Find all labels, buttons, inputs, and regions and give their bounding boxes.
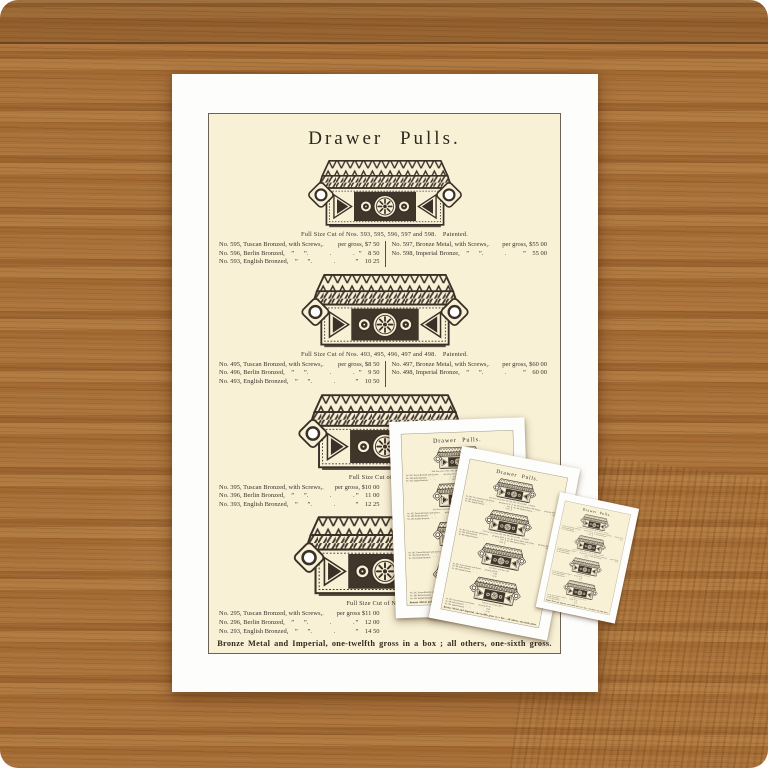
item-label: No. 593, English Bronzed, ” ” [406,479,435,483]
item-price: per gross, $8 50 [338,361,380,370]
catalog-page: Drawer Pulls. Full Size Cut of Nos. 593,… [544,501,631,615]
item-price: per gross, $10 00 [335,484,380,493]
leader-dots: . . . [307,369,359,378]
item-label: No. 393, English Bronzed, ” ” [409,556,438,560]
item-label: No. 593, English Bronzed, ” ” [219,258,310,267]
item-label: No. 597, Bronze Metal, with Screws, [392,241,489,250]
item-price: ” 12 25 [355,501,379,510]
leader-dots: . . . [310,258,355,267]
item-price: ” 8 50 [359,250,380,259]
item-label: No. 596, Berlin Bronzed, ” ” [219,250,307,259]
price-row: No. 593, English Bronzed, ” ”. . .” 10 2… [219,258,380,267]
item-label: No. 396, Berlin Bronzed, ” ” [219,492,307,501]
item-label: No. 595, Tuscan Bronzed, with Screws, [219,241,322,250]
leader-dots: . . . [482,369,523,378]
leader-dots: . . . [307,492,356,501]
leader-dots: . . . [482,250,523,259]
leader-dots: . . . [322,241,338,250]
price-row: No. 498, Imperial Bronze, ” ”. . .” 60 0… [392,369,548,378]
item-label: No. 496, Berlin Bronzed, ” ” [219,369,307,378]
price-row: No. 395, Tuscan Bronzed, with Screws,. .… [219,484,380,493]
item-price: ” 60 00 [523,369,547,378]
price-row: No. 595, Tuscan Bronzed, with Screws,. .… [219,241,380,250]
item-label: No. 293, English Bronzed, ” ” [219,628,310,637]
item-price: ” 10 25 [355,258,379,267]
leader-dots: . . . [310,501,355,510]
leader-dots: . . . [322,361,338,370]
item-price: ” 14 50 [355,628,379,637]
leader-dots: . . . [322,484,335,493]
price-row: No. 597, Bronze Metal, with Screws,. . .… [392,241,548,250]
leader-dots: . . . [488,241,502,250]
item-price: ” 55 00 [618,538,623,541]
item-price: per gross, $7 50 [338,241,380,250]
item-label: No. 495, Tuscan Bronzed, with Screws, [219,361,322,370]
price-row: No. 296, Berlin Bronzed, ” ”. . .” 12 00 [219,619,380,628]
item-price: ” 12 00 [355,619,379,628]
price-row: No. 293, English Bronzed, ” ”. . .” 14 5… [219,628,380,637]
item-label: No. 598, Imperial Bronze, ” ” [392,250,482,259]
item-price: per gross $11 00 [337,610,380,619]
item-price: ” 10 50 [355,378,379,387]
leader-dots: . . . [307,619,356,628]
price-row: No. 295, Tuscan Bronzed, with Screws,. .… [219,610,380,619]
leader-dots: . . . [322,610,336,619]
price-row: No. 496, Berlin Bronzed, ” ”. . .” 9 50 [219,369,380,378]
price-row: No. 497, Bronze Metal, with Screws,. . .… [392,361,548,370]
leader-dots: . . . [435,478,449,481]
catalog-section-1: Full Size Cut of Nos. 593, 595, 596, 597… [209,158,560,267]
item-price: ” 55 00 [523,250,547,259]
price-row: No. 598, Imperial Bronze, ” ”. . .” 55 0… [392,250,548,259]
item-label: No. 497, Bronze Metal, with Screws, [392,361,489,370]
item-label: No. 493, English Bronzed, ” ” [407,517,436,521]
leader-dots: . . . [488,361,502,370]
drawer-pull-illustration-1 [306,158,464,229]
price-row: No. 495, Tuscan Bronzed, with Screws,. .… [219,361,380,370]
leader-dots: . . . [307,250,359,259]
page-title: Drawer Pulls. [209,128,560,150]
item-label: No. 393, English Bronzed, ” ” [219,501,310,510]
item-label: No. 296, Berlin Bronzed, ” ” [219,619,307,628]
item-label: No. 498, Imperial Bronze, ” ” [392,369,482,378]
item-price: ” 11 00 [356,492,380,501]
price-row: No. 596, Berlin Bronzed, ” ”. . .” 8 50 [219,250,380,259]
item-label: No. 395, Tuscan Bronzed, with Screws, [219,484,322,493]
price-row: No. 393, English Bronzed, ” ”. . .” 12 2… [219,501,380,510]
catalog-section-2: Full Size Cut of Nos. 493, 495, 496, 497… [209,272,560,387]
item-price: per gross, $55 00 [502,241,547,250]
item-label: No. 295, Tuscan Bronzed, with Screws, [219,610,322,619]
box-quantity-footnote: Bronze Metal and Imperial, one-twelfth g… [209,639,560,649]
leader-dots: . . . [310,378,355,387]
item-price: ” 9 50 [359,369,380,378]
item-label: No. 493, English Bronzed, ” ” [219,378,310,387]
price-row: No. 396, Berlin Bronzed, ” ”. . .” 11 00 [219,492,380,501]
product-photo: Drawer Pulls. Full Size Cut of Nos. 593,… [0,0,768,768]
wood-plank-seam [0,0,768,44]
figure-caption-1: Full Size Cut of Nos. 593, 595, 596, 597… [209,231,560,238]
item-price: per gross, $60 00 [502,361,547,370]
leader-dots: . . . [310,628,355,637]
price-row: No. 493, English Bronzed, ” ”. . .” 10 5… [219,378,380,387]
figure-caption-2: Full Size Cut of Nos. 493, 495, 496, 497… [209,351,560,358]
drawer-pull-illustration-2 [299,272,471,349]
item-price: ” 60 00 [613,561,618,564]
